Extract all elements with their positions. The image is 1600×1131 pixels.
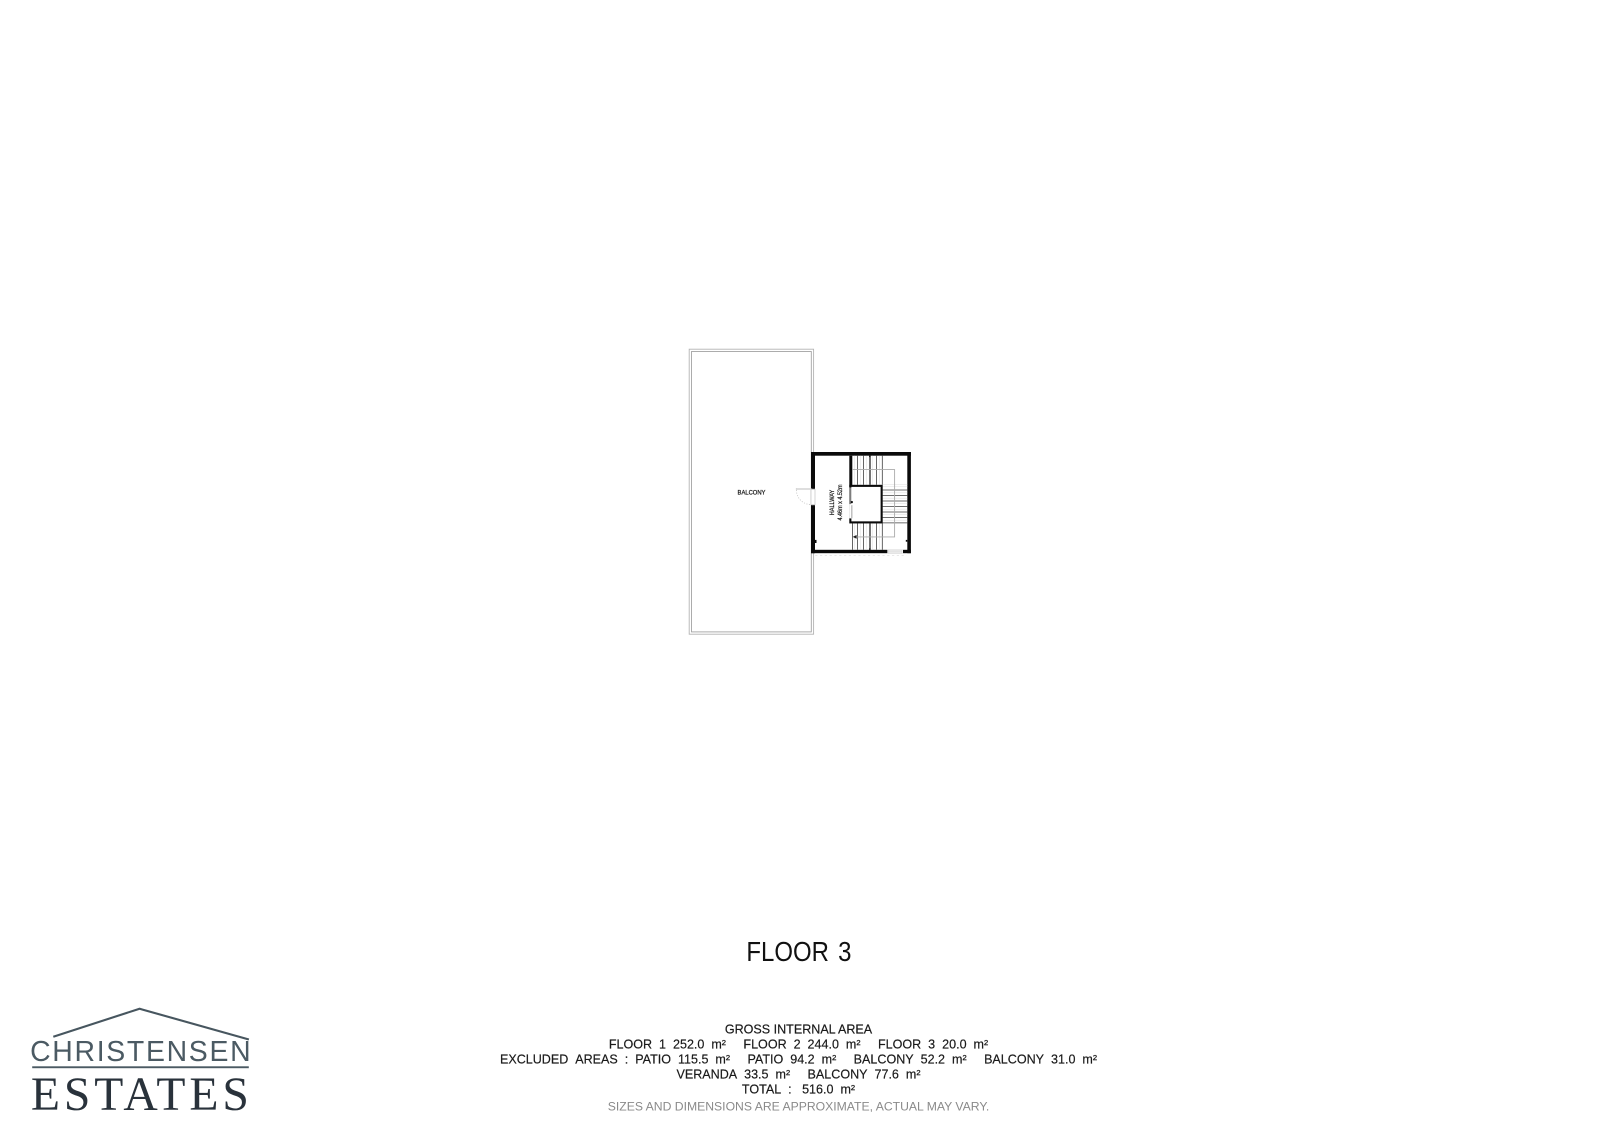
svg-text:EXCLUDED AREAS : PATIO 115: EXCLUDED AREAS : PATIO 115.5 m² PATIO 94… (500, 1053, 1097, 1067)
svg-text:BALCONY: BALCONY (738, 489, 767, 497)
svg-text:HALLWAY: HALLWAY (830, 490, 836, 515)
svg-text:TOTAL : 516.0 m²: TOTAL : 516.0 m² (742, 1083, 855, 1097)
svg-text:FLOOR 1 252.0 m² FLOOR: FLOOR 1 252.0 m² FLOOR 2 244.0 m² FLOOR … (609, 1038, 988, 1052)
svg-text:CHRISTENSEN: CHRISTENSEN (30, 1036, 252, 1068)
svg-text:SIZES AND DIMENSIONS ARE APPRO: SIZES AND DIMENSIONS ARE APPROXIMATE, AC… (608, 1100, 990, 1114)
svg-text:ESTATES: ESTATES (31, 1069, 253, 1121)
svg-text:4.46m x 4.52m: 4.46m x 4.52m (838, 484, 844, 520)
svg-text:GROSS INTERNAL AREA: GROSS INTERNAL AREA (725, 1023, 873, 1037)
svg-text:VERANDA 33.5 m² BALCONY: VERANDA 33.5 m² BALCONY 77.6 m² (676, 1068, 920, 1082)
